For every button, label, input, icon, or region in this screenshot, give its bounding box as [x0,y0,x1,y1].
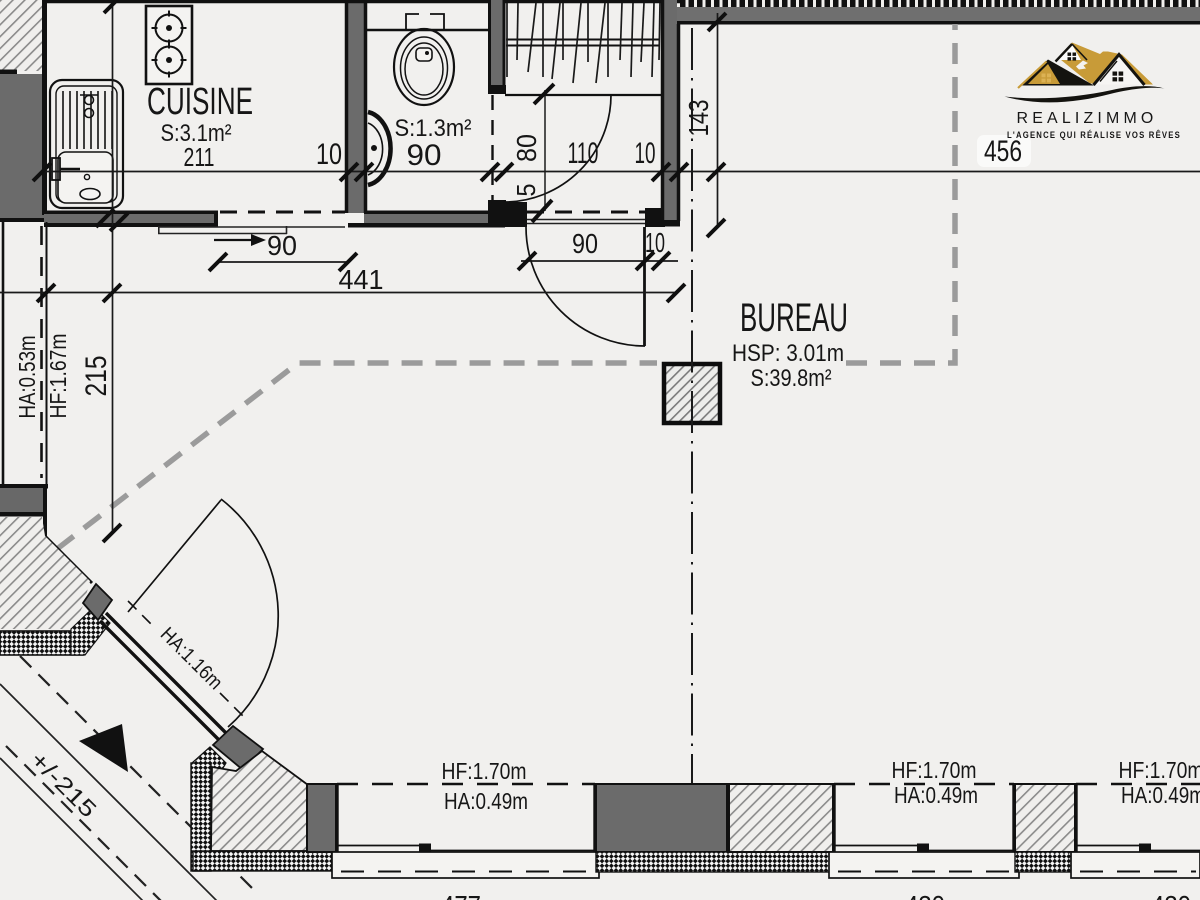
svg-text:HA:0.53m: HA:0.53m [14,336,40,419]
svg-text:CUISINE: CUISINE [147,81,253,123]
svg-text:430: 430 [1151,890,1191,900]
svg-text:HF:1.70m: HF:1.70m [892,757,977,783]
svg-text:HF:1.67m: HF:1.67m [45,334,71,419]
svg-text:10: 10 [316,138,342,171]
svg-text:215: 215 [80,356,113,397]
svg-text:REALIZIMMO: REALIZIMMO [1017,110,1158,127]
svg-text:HF:1.70m: HF:1.70m [442,758,527,784]
svg-text:BUREAU: BUREAU [740,296,848,340]
svg-text:L'AGENCE QUI RÉALISE VOS RÊVES: L'AGENCE QUI RÉALISE VOS RÊVES [1007,129,1181,141]
svg-text:10: 10 [635,137,656,170]
svg-text:10: 10 [645,227,665,258]
svg-text:80: 80 [511,134,542,162]
svg-text:143: 143 [683,100,714,137]
svg-text:HA:0.49m: HA:0.49m [1121,782,1200,808]
svg-text:90: 90 [407,139,442,172]
svg-text:90: 90 [267,230,297,261]
svg-text:211: 211 [184,142,215,172]
svg-text:HSP: 3.01m: HSP: 3.01m [732,340,844,367]
svg-text:430: 430 [905,890,945,900]
svg-text:S:1.3m²: S:1.3m² [395,115,472,142]
svg-text:HA:0.49m: HA:0.49m [444,788,528,814]
svg-text:5: 5 [511,184,541,197]
svg-text:HF:1.70m: HF:1.70m [1119,757,1200,783]
svg-text:441: 441 [339,264,384,295]
svg-text:HA:0.49m: HA:0.49m [894,782,978,808]
svg-text:110: 110 [568,137,599,170]
svg-text:477: 477 [441,890,481,900]
svg-text:90: 90 [572,228,598,259]
svg-text:S:39.8m²: S:39.8m² [751,365,832,392]
